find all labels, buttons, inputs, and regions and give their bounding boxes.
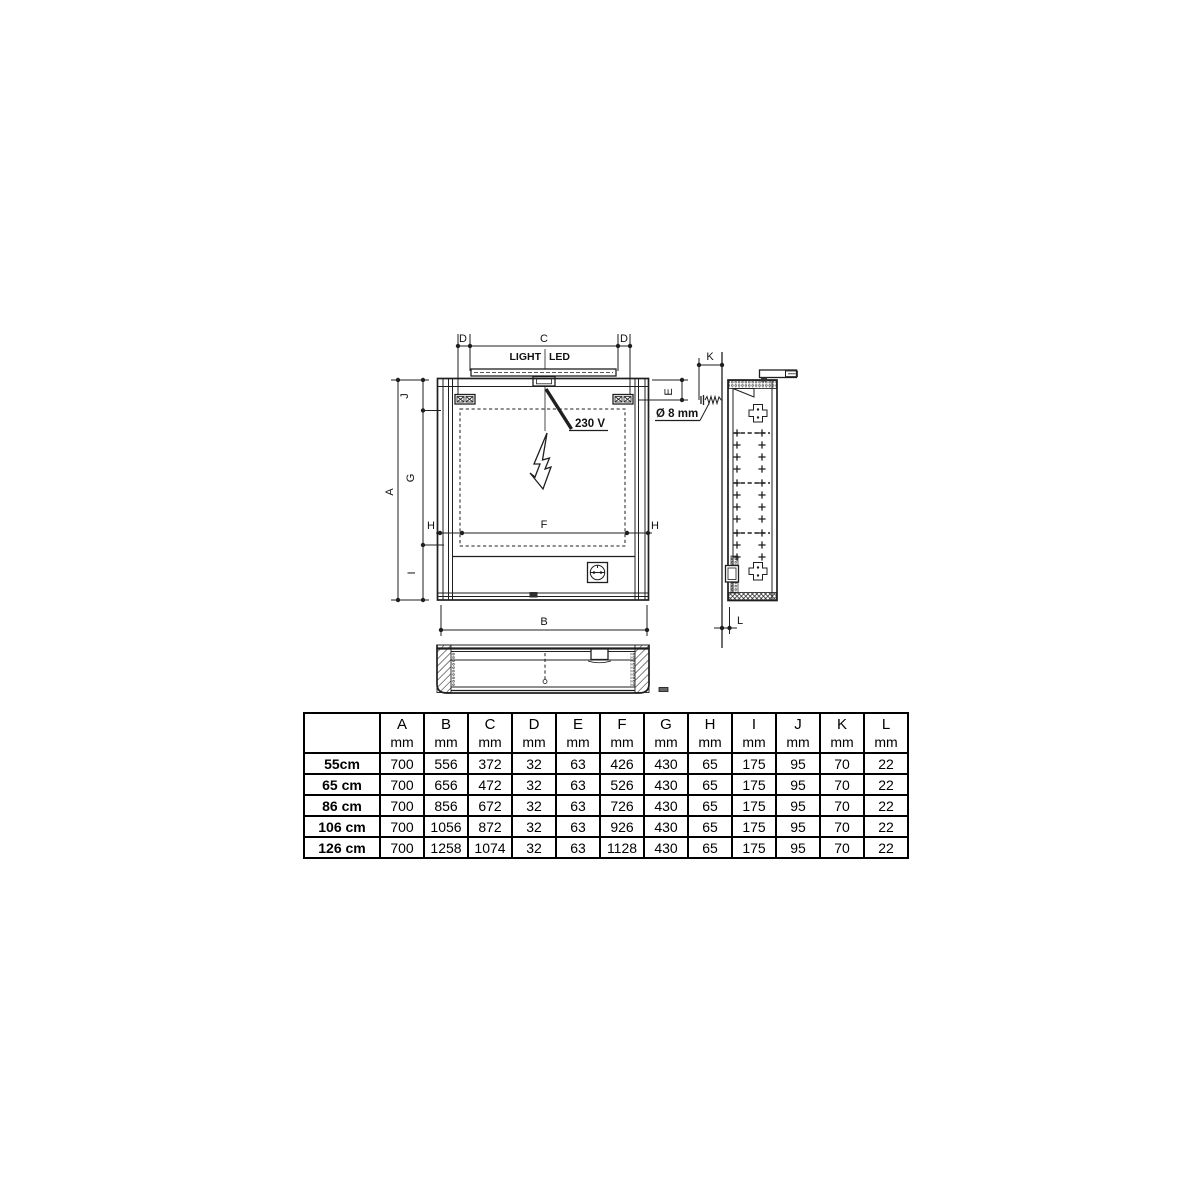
table-cell: 430 [644,774,688,795]
dim-label-l: L [737,615,743,627]
table-cell: 65 [688,774,732,795]
dim-label-i: I [406,571,418,574]
table-cell: 872 [468,816,512,837]
dim-label-h-right: H [651,520,659,532]
dim-label-h-left: H [427,520,435,532]
table-col-header-G: Gmm [644,713,688,753]
col-unit: mm [557,734,599,751]
col-letter: K [821,715,863,734]
mounting-bracket-right [613,395,633,405]
table-cell: 70 [820,816,864,837]
pull-cord [543,653,547,684]
table-cell: 32 [512,816,556,837]
col-unit: mm [645,734,687,751]
table-col-header-F: Fmm [600,713,644,753]
dim-label-f: F [541,519,548,531]
table-cell: 32 [512,774,556,795]
dimension-left: A J G I [384,378,444,602]
table-cell: 63 [556,753,600,774]
col-unit: mm [513,734,555,751]
table-cell: 672 [468,795,512,816]
dim-label-g: G [405,474,417,483]
table-row: 65 cm700656472326352643065175957022 [304,774,908,795]
table-cell: 430 [644,795,688,816]
table-cell: 70 [820,753,864,774]
dimension-hfh: H F H [427,519,659,535]
table-cell: 22 [864,795,908,816]
dimension-k: K [697,351,724,400]
row-label: 86 cm [304,795,380,816]
bottom-mount-rail [726,566,739,583]
table-cell: 63 [556,837,600,858]
table-col-header-E: Emm [556,713,600,753]
col-unit: mm [689,734,731,751]
col-letter: G [645,715,687,734]
dim-label-d-right: D [620,333,628,345]
power-socket-icon [588,563,608,583]
table-cell: 63 [556,816,600,837]
table-cell: 700 [380,795,424,816]
voltage-callout: 230 V [546,389,608,431]
dimension-table: AmmBmmCmmDmmEmmFmmGmmHmmImmJmmKmmLmm 55c… [303,712,909,859]
table-cell: 175 [732,774,776,795]
dimension-e: E [639,378,689,402]
light-label-right: LED [549,351,570,363]
dim-label-j: J [399,393,411,399]
table-col-header-A: Amm [380,713,424,753]
dim-label-e: E [663,388,675,395]
table-cell: 1074 [468,837,512,858]
table-cell: 70 [820,795,864,816]
col-letter: A [381,715,423,734]
table-cell: 95 [776,816,820,837]
led-light-bar [471,369,616,386]
table-row: 86 cm700856672326372643065175957022 [304,795,908,816]
col-letter: I [733,715,775,734]
dimension-table-wrap: AmmBmmCmmDmmEmmFmmGmmHmmImmJmmKmmLmm 55c… [303,712,909,859]
table-row: 126 cm700125810743263112843065175957022 [304,837,908,858]
switch-box [588,649,611,663]
table-cell: 95 [776,753,820,774]
table-col-header-J: Jmm [776,713,820,753]
col-unit: mm [865,734,907,751]
table-cell: 700 [380,753,424,774]
row-label: 65 cm [304,774,380,795]
table-cell: 95 [776,837,820,858]
col-letter: J [777,715,819,734]
col-letter: C [469,715,511,734]
table-cell: 430 [644,837,688,858]
light-label-left: LIGHT [510,351,542,363]
table-cell: 65 [688,795,732,816]
table-col-header-H: Hmm [688,713,732,753]
col-unit: mm [733,734,775,751]
cabinet-technical-drawing: 230 V LIGHT LED D C D [0,0,1200,1200]
table-cell: 926 [600,816,644,837]
table-cell: 430 [644,816,688,837]
table-cell: 32 [512,837,556,858]
col-letter: F [601,715,643,734]
dim-label-d-left: D [459,333,467,345]
col-letter: L [865,715,907,734]
led-arm-side [760,370,798,382]
technical-drawing-page: 230 V LIGHT LED D C D [0,0,1200,1200]
table-cell: 700 [380,816,424,837]
col-unit: mm [469,734,511,751]
table-cell: 426 [600,753,644,774]
col-unit: mm [381,734,423,751]
corner-fitting [659,688,668,692]
table-col-header-L: Lmm [864,713,908,753]
col-unit: mm [777,734,819,751]
table-col-header-I: Imm [732,713,776,753]
table-cell: 856 [424,795,468,816]
table-corner-cell [304,713,380,753]
dimension-table-header: AmmBmmCmmDmmEmmFmmGmmHmmImmJmmKmmLmm [304,713,908,753]
table-row: 106 cm7001056872326392643065175957022 [304,816,908,837]
front-view: 230 V LIGHT LED [438,349,649,600]
table-cell: 22 [864,774,908,795]
table-cell: 70 [820,837,864,858]
mounting-bracket-left [455,395,475,405]
table-cell: 22 [864,816,908,837]
col-unit: mm [425,734,467,751]
col-letter: D [513,715,555,734]
row-label: 126 cm [304,837,380,858]
dim-label-c: C [540,333,548,345]
col-unit: mm [821,734,863,751]
table-cell: 556 [424,753,468,774]
dimension-b: B [439,605,649,636]
row-label: 55cm [304,753,380,774]
table-col-header-B: Bmm [424,713,468,753]
table-cell: 700 [380,837,424,858]
col-unit: mm [601,734,643,751]
table-cell: 472 [468,774,512,795]
table-cell: 1258 [424,837,468,858]
row-label: 106 cm [304,816,380,837]
table-cell: 65 [688,753,732,774]
table-cell: 372 [468,753,512,774]
table-cell: 63 [556,774,600,795]
table-cell: 175 [732,795,776,816]
table-cell: 70 [820,774,864,795]
col-letter: E [557,715,599,734]
table-cell: 95 [776,795,820,816]
table-cell: 65 [688,837,732,858]
mounting-screw [701,395,722,405]
col-letter: B [425,715,467,734]
table-cell: 175 [732,837,776,858]
table-col-header-D: Dmm [512,713,556,753]
dim-label-b: B [540,616,547,628]
hole-diameter-callout: Ø 8 mm [655,404,709,421]
table-col-header-K: Kmm [820,713,864,753]
table-cell: 1056 [424,816,468,837]
table-col-header-C: Cmm [468,713,512,753]
col-letter: H [689,715,731,734]
table-cell: 95 [776,774,820,795]
table-cell: 175 [732,816,776,837]
table-cell: 32 [512,795,556,816]
hole-diameter-label: Ø 8 mm [656,408,698,420]
table-cell: 175 [732,753,776,774]
table-cell: 65 [688,816,732,837]
lightning-bolt-icon [530,433,551,489]
table-cell: 22 [864,837,908,858]
table-cell: 63 [556,795,600,816]
dim-label-a: A [384,488,396,496]
table-cell: 22 [864,753,908,774]
dimension-dcd: D C D [456,333,632,394]
table-cell: 656 [424,774,468,795]
table-cell: 430 [644,753,688,774]
dim-label-k: K [706,351,714,363]
voltage-label: 230 V [575,418,605,430]
dimension-l: L [714,607,743,634]
bottom-view [437,645,668,694]
side-view: K L [697,351,798,648]
table-cell: 700 [380,774,424,795]
table-cell: 32 [512,753,556,774]
table-row: 55cm700556372326342643065175957022 [304,753,908,774]
table-cell: 1128 [600,837,644,858]
table-cell: 526 [600,774,644,795]
bottom-center-fastener [530,592,538,598]
table-cell: 726 [600,795,644,816]
